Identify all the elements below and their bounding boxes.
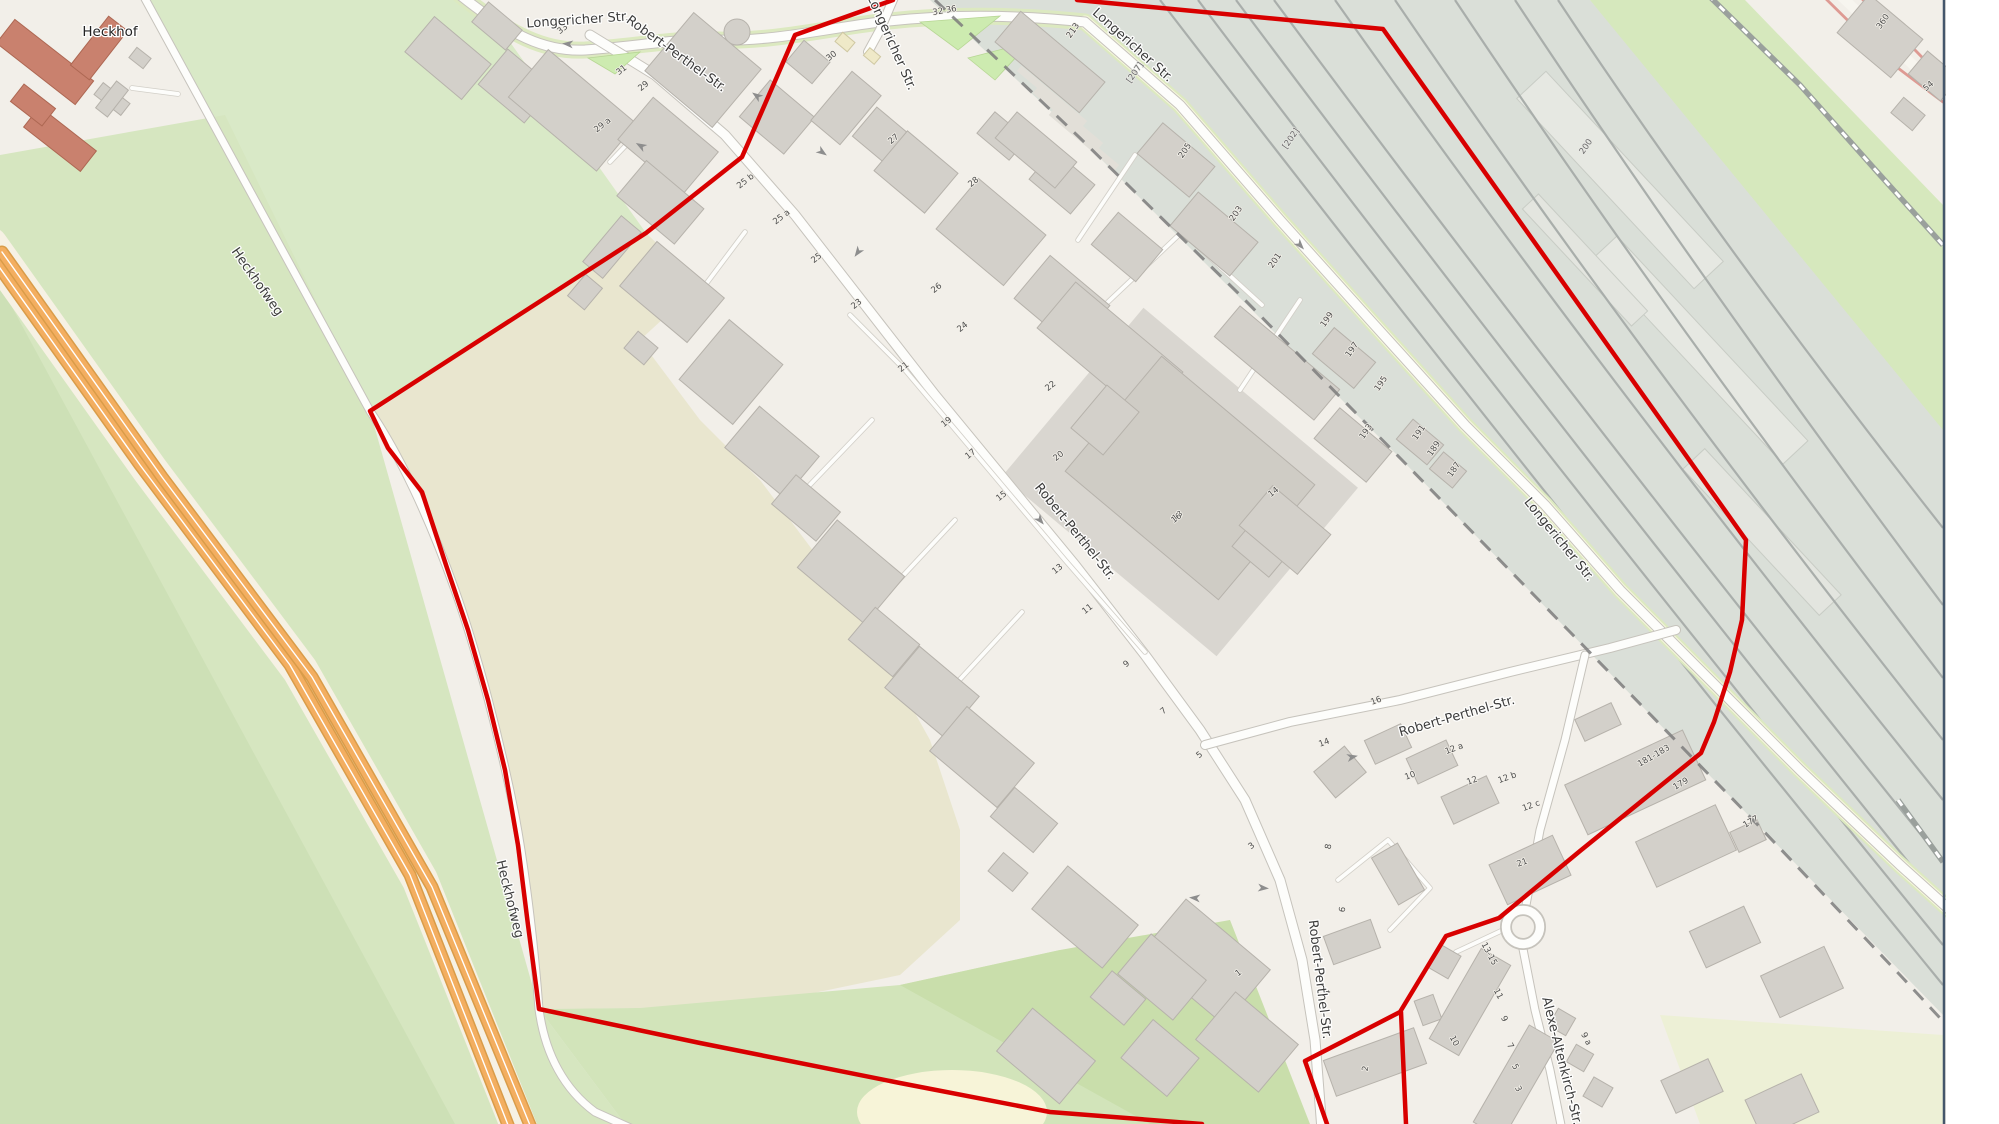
place-label: Heckhof — [82, 24, 139, 40]
place-labels: Heckhof — [82, 24, 139, 40]
right-gutter — [1946, 0, 1999, 1124]
map-svg[interactable]: [207][202]200 33312929 a2725 b25 a252321… — [0, 0, 1999, 1124]
map-viewport[interactable]: [207][202]200 33312929 a2725 b25 a252321… — [0, 0, 1999, 1124]
